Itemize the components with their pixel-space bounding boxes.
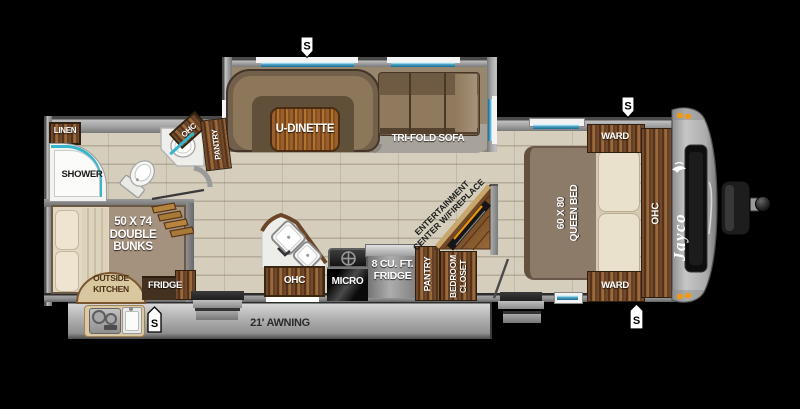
svg-text:ENTERTAINMENT: ENTERTAINMENT bbox=[413, 178, 472, 237]
svg-text:S: S bbox=[303, 41, 310, 53]
svg-text:Jayco: Jayco bbox=[670, 213, 689, 262]
svg-text:S: S bbox=[151, 318, 158, 330]
svg-text:S: S bbox=[624, 101, 631, 113]
svg-text:CENTER W/FIREPLACE: CENTER W/FIREPLACE bbox=[411, 177, 487, 253]
svg-text:S: S bbox=[633, 315, 640, 327]
